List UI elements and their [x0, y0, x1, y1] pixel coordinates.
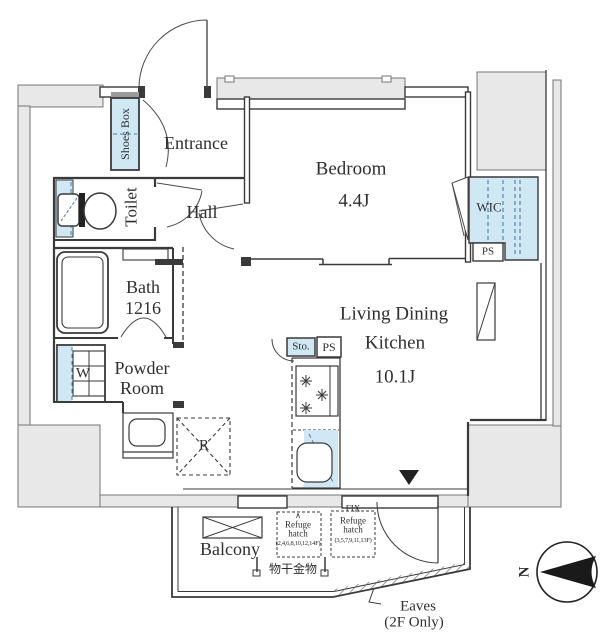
eaves-label-1: Eaves	[400, 600, 436, 615]
bath-size-label: 1216	[125, 299, 161, 317]
balcony-label: Balcony	[200, 540, 260, 558]
wall-bedroom-left	[245, 97, 250, 203]
stove-burners	[300, 375, 328, 414]
wic-label: WIC	[476, 201, 501, 214]
bathtub-outer	[57, 252, 108, 333]
kitchen-sink	[297, 443, 332, 482]
refuge-hatch-even-line2: hatch	[288, 530, 308, 539]
wic-folding-door	[452, 177, 468, 240]
entrance-label: Entrance	[164, 134, 228, 152]
balcony-vent-x	[203, 517, 262, 538]
bathtub-inner	[62, 257, 103, 328]
eaves-label-2: (2F Only)	[384, 616, 444, 631]
powder-room-label-2: Room	[120, 379, 164, 397]
washer-label: W	[76, 367, 90, 382]
wall-bedroom-bottom-sliding	[248, 259, 468, 265]
top-bar-notch-right	[382, 76, 391, 82]
shoes-box-label: Shoes Box	[119, 108, 131, 160]
toilet-label: Toilet	[123, 187, 140, 226]
toilet-door-leaf	[157, 183, 202, 190]
hall-label: Hall	[187, 203, 218, 221]
bath-door-arc	[121, 318, 166, 337]
bath-label: Bath	[126, 278, 160, 296]
bedroom-size-label: 4.4J	[338, 192, 369, 211]
north-label: N	[518, 567, 533, 578]
refuge-hatch-even-floors: (2,4,6,8,10,12,14F)	[276, 541, 321, 548]
window-top-right	[405, 87, 468, 97]
ps-wic-label: PS	[482, 247, 494, 258]
ldk-label-1: Living Dining	[340, 305, 448, 324]
entry-triangle-marker	[399, 470, 419, 485]
ps-kitchen-label: PS	[322, 341, 335, 353]
wall-stub-powder-bottom	[173, 401, 184, 408]
exterior-bottom-right-block	[468, 425, 561, 507]
ldk-size-label: 10.1J	[375, 368, 416, 387]
powder-room-label-1: Powder	[115, 359, 170, 377]
balcony-door-arc	[377, 502, 438, 563]
toilet-bowl	[84, 193, 116, 229]
eaves-hatch-band	[334, 561, 470, 596]
exterior-left-band	[18, 106, 30, 427]
refuge-hatch-odd-line2: hatch	[343, 526, 363, 535]
top-bar-notch-left	[225, 76, 234, 82]
vanity-basin	[129, 419, 165, 446]
exterior-right-band	[553, 80, 561, 426]
compass	[537, 542, 597, 602]
refuge-hatch-odd-floors: (3,5,7,9,11,13F)	[334, 538, 371, 545]
exterior-bottom-left-block	[18, 425, 100, 507]
fridge-label: R	[199, 439, 209, 454]
laundry-hardware-label: 物干金物	[269, 563, 317, 575]
exterior-top-left-bar	[18, 85, 103, 107]
refuge-hatch-odd-fix: FIX	[346, 505, 361, 514]
storage-label: Sto.	[292, 342, 309, 353]
balcony-window-left	[238, 496, 287, 508]
eaves-leader-line	[369, 588, 381, 604]
bath-counter	[123, 249, 168, 260]
ldk-label-2: Kitchen	[365, 334, 425, 353]
wall-powder-bottom	[54, 402, 123, 413]
bedroom-label: Bedroom	[316, 160, 387, 179]
entrance-door-arc	[139, 20, 207, 88]
floorplan-page: Entrance Hall Toilet Shoes Box Bath 1216…	[0, 0, 615, 640]
exterior-top-right-block	[477, 72, 546, 170]
washer-blue-strip	[58, 346, 72, 401]
